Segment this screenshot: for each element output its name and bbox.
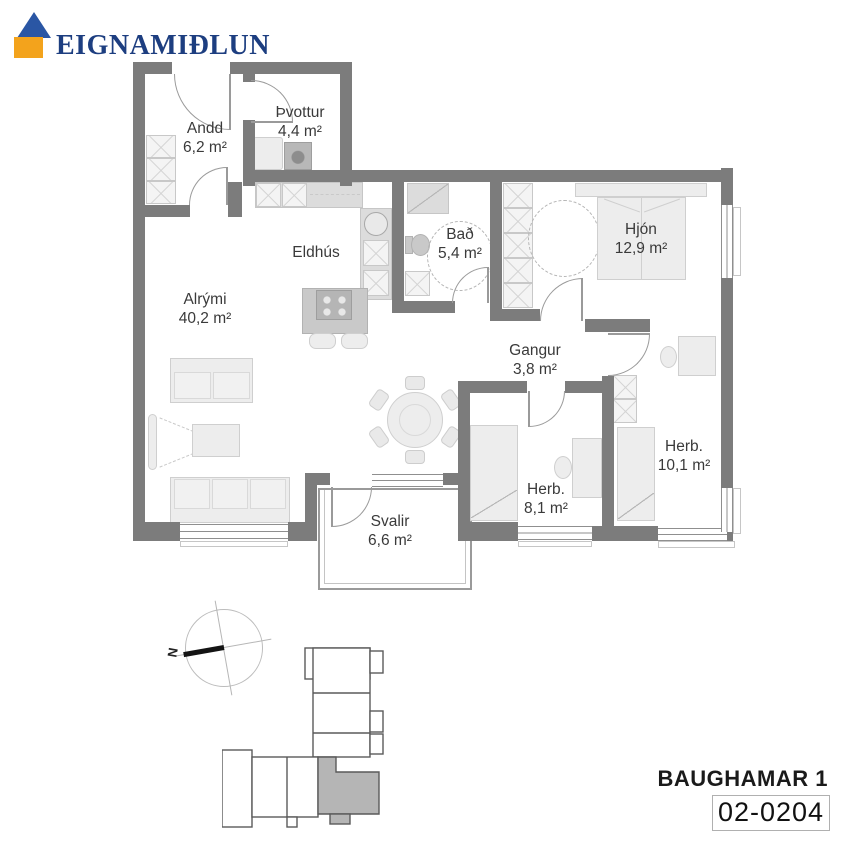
room-label-gangur: Gangur 3,8 m² — [490, 342, 580, 380]
wall-bottom-a — [133, 522, 180, 541]
window-herb-large-bottom — [658, 528, 727, 541]
coffee-table-icon — [192, 424, 240, 457]
sofa-cushion — [250, 479, 286, 509]
wall-herb1-top-b — [565, 381, 602, 393]
room-name: Herb. — [501, 481, 591, 500]
room-name: Herb. — [639, 438, 729, 457]
wall-divider-stub — [243, 62, 255, 82]
sofa-cushion — [174, 372, 211, 399]
wall-hjon-bottom-b — [585, 319, 650, 332]
logo: EIGNAMIÐLUN — [12, 12, 272, 62]
herb-large-door-arc — [608, 334, 650, 376]
room-name: Alrými — [160, 291, 250, 310]
window-balcony — [372, 474, 443, 487]
andd-door-arc — [189, 167, 227, 205]
wall-bottom-c — [458, 522, 518, 541]
dining-chair-icon — [405, 376, 425, 390]
window-sill — [658, 541, 735, 548]
room-label-herb-small: Herb. 8,1 m² — [501, 481, 591, 519]
keyplan-highlighted-unit — [318, 757, 379, 814]
turning-circle-hjon — [528, 200, 600, 277]
brand-name: EIGNAMIÐLUN — [56, 30, 270, 62]
keyplan-bay — [370, 711, 383, 732]
keyplan-highlighted-bay — [330, 814, 350, 824]
balcony-door-leaf — [331, 487, 333, 527]
window-herb-large-right — [721, 488, 733, 532]
kitchen-sink-icon — [364, 212, 388, 236]
wall-andd-corner — [228, 182, 242, 217]
room-name: Þvottur — [255, 104, 345, 123]
desk-icon — [678, 336, 716, 376]
oven-icon — [363, 240, 389, 266]
wardrobe-icon — [503, 283, 533, 308]
bar-stool-icon — [341, 333, 368, 349]
floor-plan-page: EIGNAMIÐLUN — [0, 0, 867, 867]
wardrobe-icon — [503, 258, 533, 283]
kitchen-cabinet-icon — [282, 183, 307, 207]
site-key-plan — [222, 645, 387, 835]
room-area: 6,6 m² — [345, 532, 435, 551]
sofa-cushion — [174, 479, 210, 509]
room-area: 8,1 m² — [501, 500, 591, 519]
room-label-bad: Bað 5,4 m² — [415, 226, 505, 264]
room-name: Andd — [160, 120, 250, 139]
room-label-alrymi: Alrými 40,2 m² — [160, 291, 250, 329]
room-label-eldhus: Eldhús — [271, 244, 361, 263]
room-area: 40,2 m² — [160, 310, 250, 329]
keyplan-wing-lower — [252, 757, 318, 817]
herb-small-door-arc — [529, 391, 565, 427]
wall-right-a — [721, 168, 733, 205]
kitchen-cabinet-icon — [256, 183, 281, 207]
keyplan-unit — [222, 750, 252, 827]
keyplan-bay — [370, 734, 383, 754]
shelf-icon — [613, 375, 637, 399]
wall-herb1-left — [458, 381, 470, 541]
window-sill — [733, 207, 741, 276]
room-area: 4,4 m² — [255, 123, 345, 142]
sofa-cushion — [213, 372, 250, 399]
unit-number: 02-0204 — [712, 795, 830, 831]
dining-table-inner — [399, 404, 431, 436]
wall-left — [133, 62, 145, 541]
wall-hjon-bottom-a — [502, 309, 540, 321]
compass-north-label: N — [164, 647, 180, 659]
wall-bottom-d — [592, 526, 658, 541]
wall-bath-left — [392, 182, 404, 313]
room-name: Bað — [415, 226, 505, 245]
room-area: 12,9 m² — [596, 240, 686, 259]
wardrobe-icon — [146, 158, 176, 181]
bath-door-leaf — [487, 267, 489, 303]
building-name: BAUGHAMAR 1 — [598, 766, 828, 792]
dining-chair-icon — [405, 450, 425, 464]
wardrobe-icon — [503, 183, 533, 208]
room-area: 10,1 m² — [639, 457, 729, 476]
bed-headboard — [575, 183, 707, 197]
keyplan-bay — [370, 651, 383, 673]
window-living-room — [180, 524, 288, 539]
room-area: 6,2 m² — [160, 139, 250, 158]
room-area: 5,4 m² — [415, 245, 505, 264]
washer-icon — [253, 137, 283, 170]
room-name: Svalir — [345, 513, 435, 532]
tv-icon — [148, 414, 157, 470]
wall-bottom-corner — [288, 522, 317, 541]
room-area: 3,8 m² — [490, 361, 580, 380]
hjon-door-arc — [540, 278, 583, 321]
wardrobe-icon — [146, 181, 176, 204]
dining-chair-icon — [368, 388, 391, 412]
wall-andd-bottom — [133, 205, 190, 217]
desk-chair-icon — [660, 346, 677, 368]
room-label-herb-large: Herb. 10,1 m² — [639, 438, 729, 476]
dryer-icon — [284, 142, 312, 170]
stove-icon — [316, 290, 352, 320]
shelf-icon — [613, 399, 637, 423]
dining-chair-icon — [368, 425, 391, 449]
room-name: Eldhús — [271, 244, 361, 263]
room-label-svalir: Svalir 6,6 m² — [345, 513, 435, 551]
sofa-cushion — [212, 479, 248, 509]
wall-balcony-stub-r — [443, 473, 458, 485]
herb-small-door-leaf — [528, 391, 530, 427]
window-sill — [180, 541, 288, 547]
room-label-hjon: Hjón 12,9 m² — [596, 221, 686, 259]
window-herb-small — [518, 526, 592, 540]
logo-house-roof-icon — [17, 12, 51, 38]
duvet-fold-line — [618, 493, 654, 519]
keyplan-wing-upper — [313, 648, 370, 757]
logo-house-body-icon — [14, 37, 43, 58]
shower-icon — [407, 183, 449, 214]
window-hjon — [721, 205, 733, 278]
wall-bath-bottom — [404, 301, 455, 313]
room-label-andd: Andd 6,2 m² — [160, 120, 250, 158]
wall-bedrooms-divider — [602, 376, 614, 541]
herb-large-door-leaf — [608, 333, 650, 335]
window-sill — [733, 488, 741, 534]
hjon-door-leaf — [581, 278, 583, 321]
counter-dashed-line — [310, 194, 360, 195]
wall-top-a — [133, 62, 172, 74]
wall-balcony-stub-l — [317, 473, 330, 485]
wall-balcony-left — [305, 473, 317, 522]
room-name: Hjón — [596, 221, 686, 240]
desk-chair-icon — [554, 456, 572, 479]
room-name: Gangur — [490, 342, 580, 361]
andd-door-leaf — [226, 167, 228, 205]
keyplan-bay — [287, 817, 297, 827]
bathroom-vanity-icon — [405, 271, 430, 296]
window-sill — [518, 541, 592, 547]
room-label-thvottur: Þvottur 4,4 m² — [255, 104, 345, 142]
wall-main-top — [243, 170, 733, 182]
bar-stool-icon — [309, 333, 336, 349]
